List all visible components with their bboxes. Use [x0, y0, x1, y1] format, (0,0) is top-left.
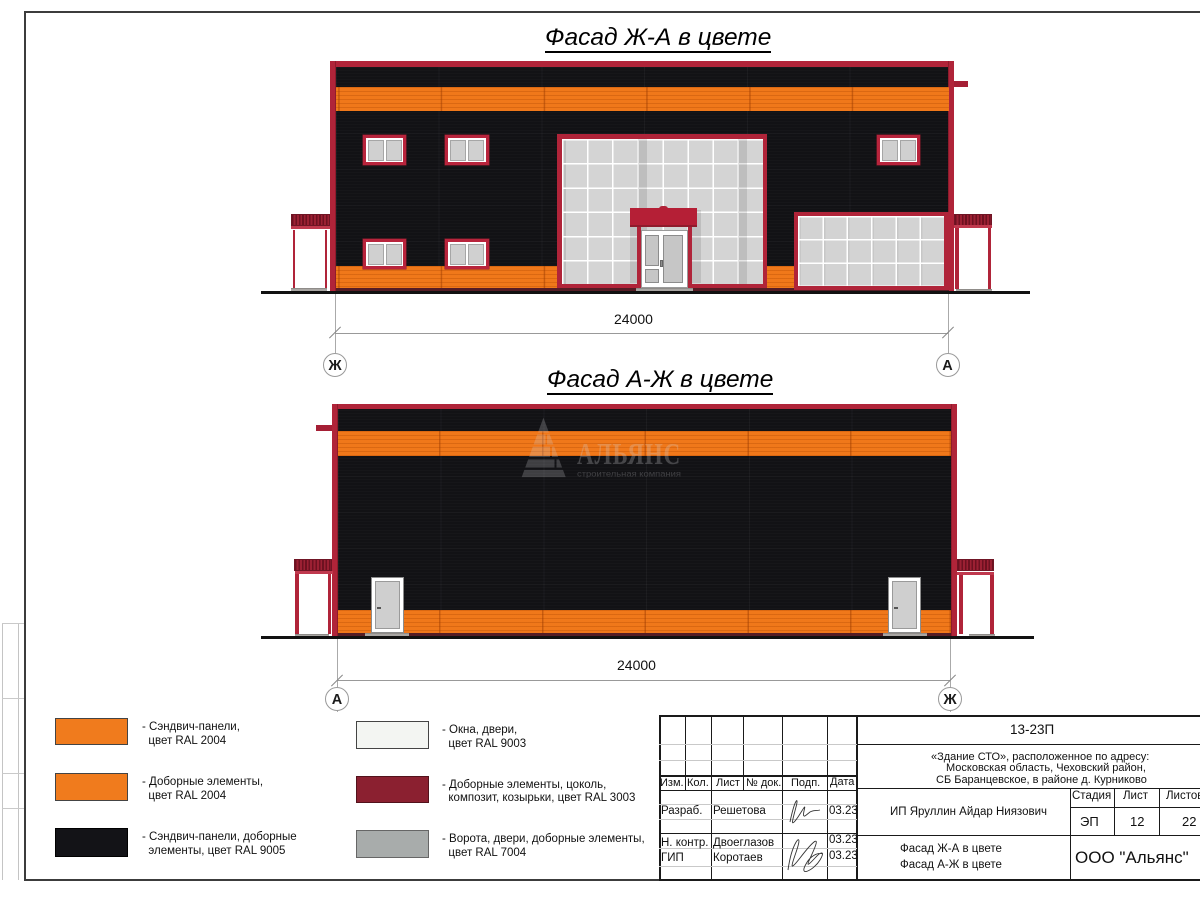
svg-text:строительная компания: строительная компания — [577, 469, 681, 479]
svg-text:АЛЬЯНС: АЛЬЯНС — [577, 436, 681, 471]
